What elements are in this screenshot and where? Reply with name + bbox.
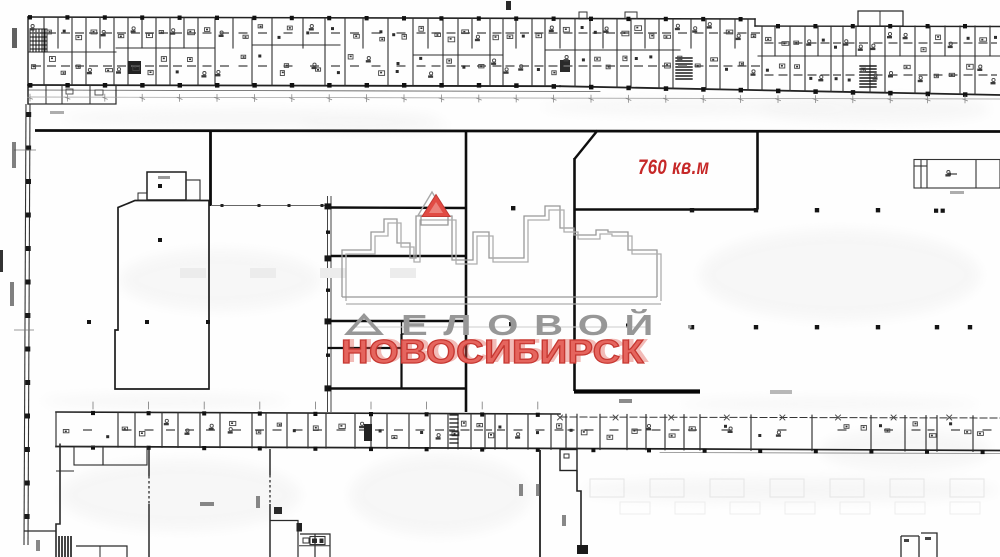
svg-text:760 кв.м: 760 кв.м xyxy=(638,156,709,179)
svg-text:НОВОСИБИРСК: НОВОСИБИРСК xyxy=(341,333,644,370)
